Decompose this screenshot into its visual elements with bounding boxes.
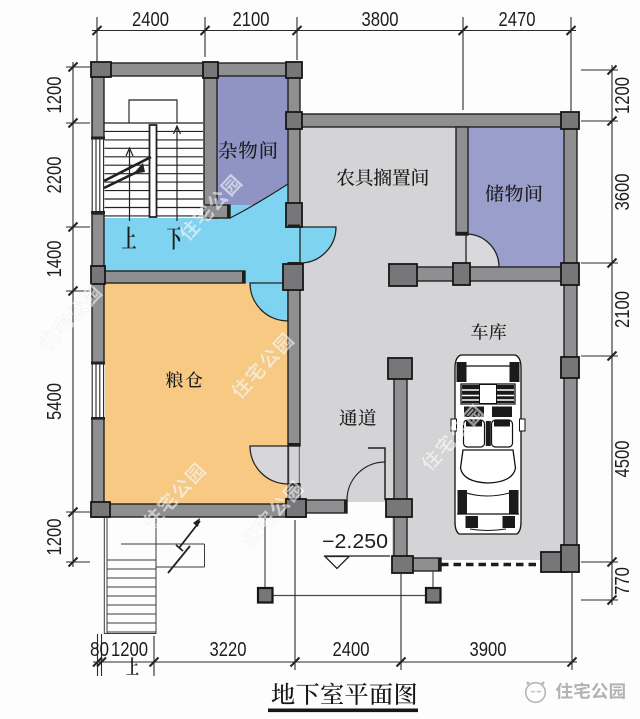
svg-text:−2.250: −2.250 (322, 531, 388, 553)
svg-text:770: 770 (612, 567, 634, 595)
svg-text:80: 80 (90, 639, 109, 661)
svg-text:3600: 3600 (612, 174, 634, 211)
svg-text:2100: 2100 (612, 291, 634, 328)
svg-text:2400: 2400 (132, 9, 169, 31)
svg-text:5400: 5400 (44, 383, 66, 420)
svg-text:1400: 1400 (44, 241, 66, 278)
svg-text:4500: 4500 (612, 441, 634, 478)
svg-text:3800: 3800 (362, 9, 399, 31)
svg-text:1200: 1200 (44, 77, 66, 114)
svg-text:2470: 2470 (499, 9, 536, 31)
svg-text:1200: 1200 (111, 639, 148, 661)
svg-text:3900: 3900 (470, 639, 507, 661)
svg-text:1200: 1200 (44, 519, 66, 556)
svg-text:2200: 2200 (44, 157, 66, 194)
svg-text:3220: 3220 (210, 639, 247, 661)
svg-text:2400: 2400 (333, 639, 370, 661)
svg-text:2100: 2100 (233, 9, 270, 31)
svg-text:1200: 1200 (612, 77, 634, 114)
